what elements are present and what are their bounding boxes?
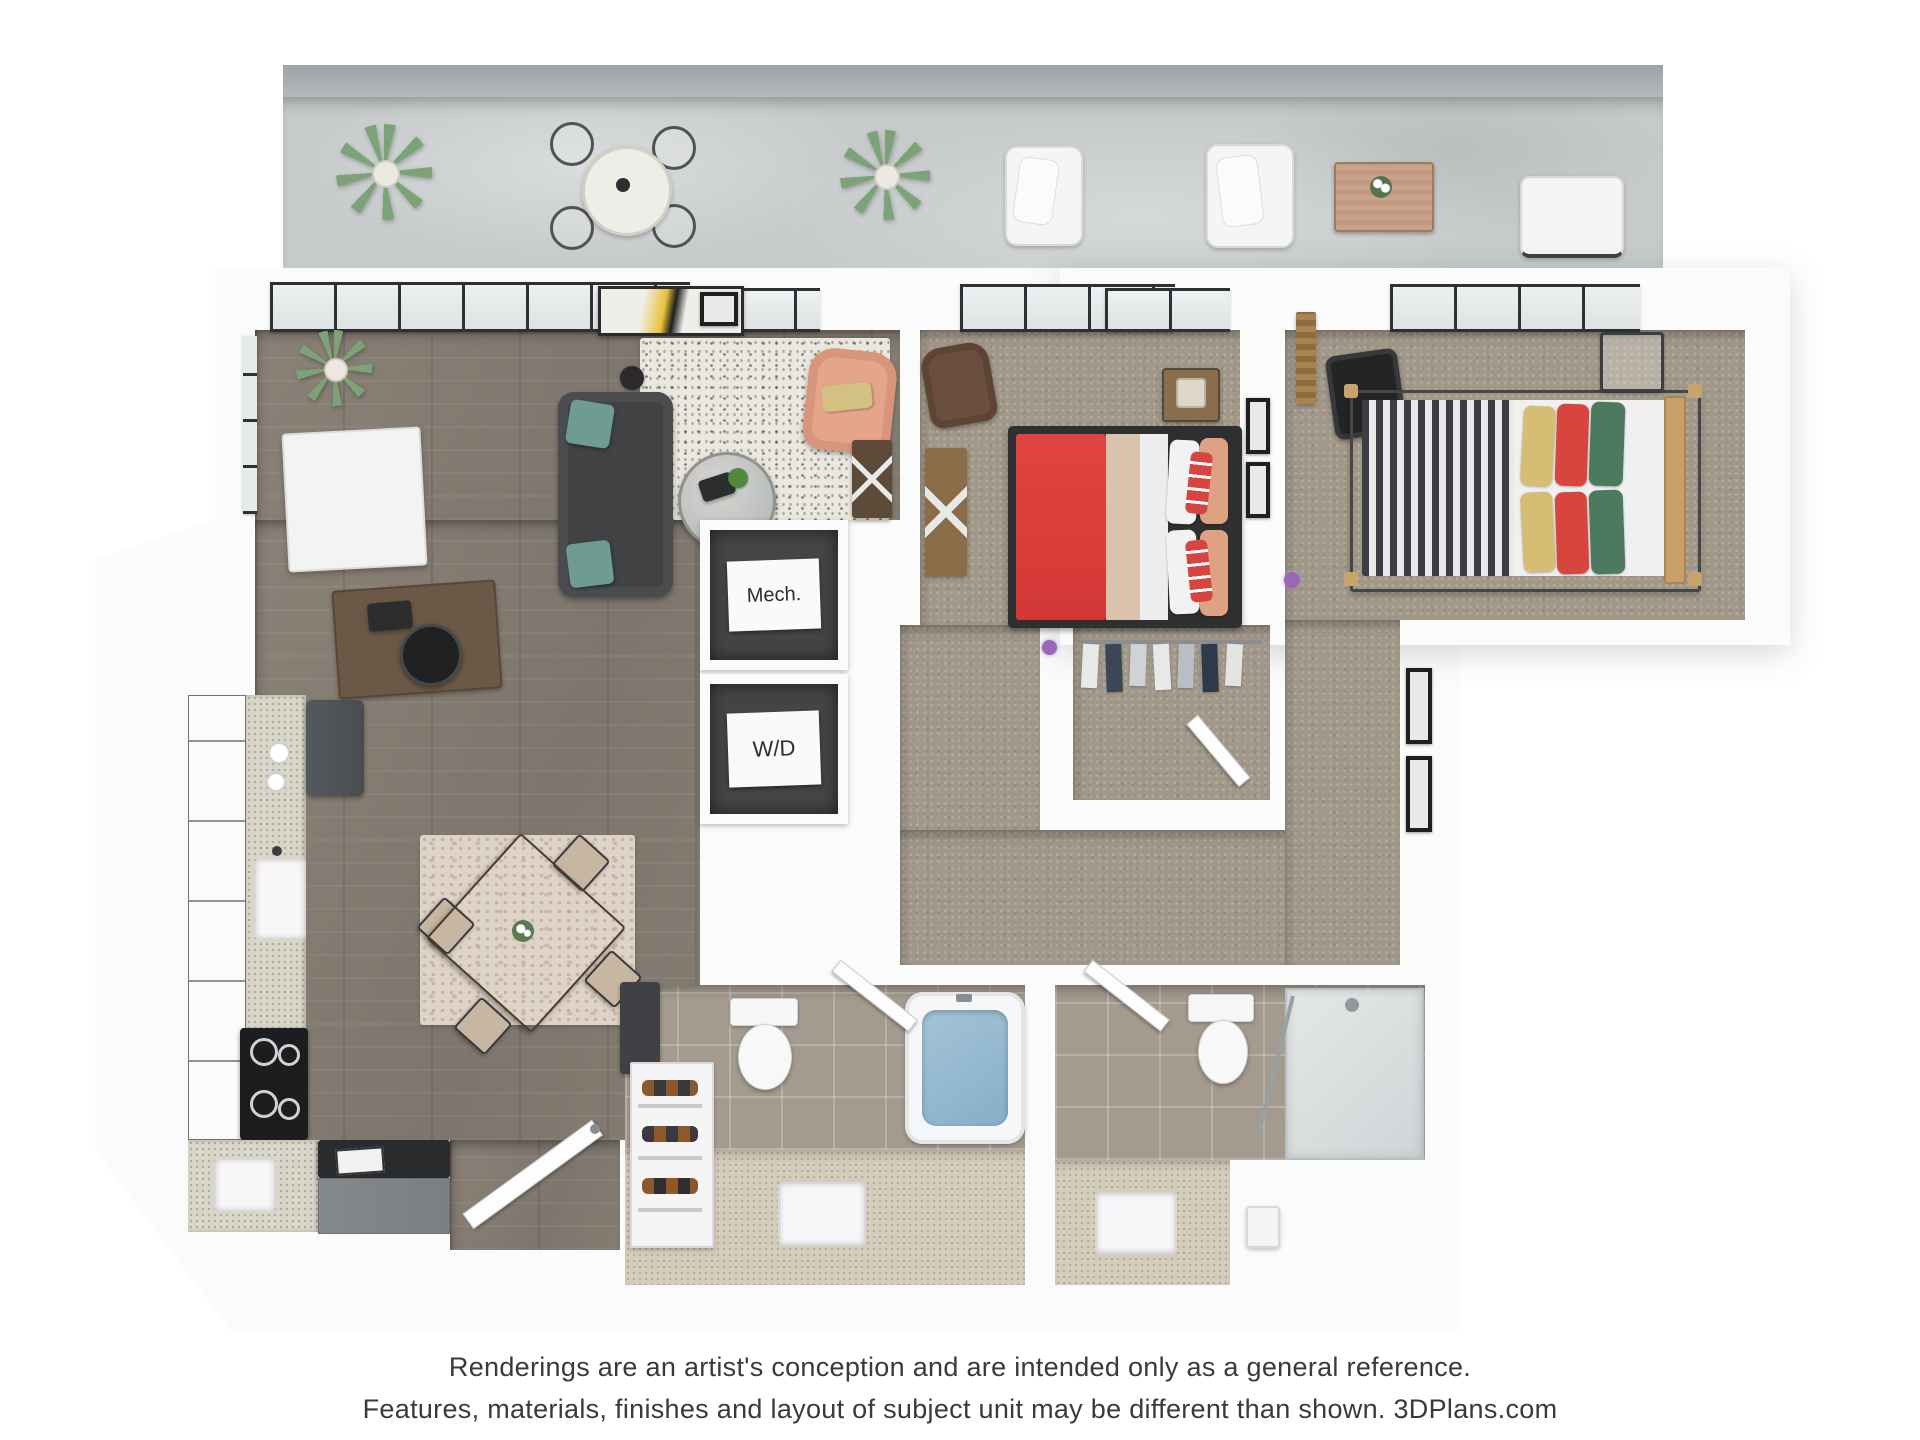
bedroom1-console (925, 448, 967, 576)
kitchen-cabinets (188, 695, 246, 1140)
balcony-floor (283, 97, 1663, 270)
living-sideboard (281, 426, 427, 572)
balcony-armchair (1520, 176, 1624, 258)
floor-lamp-icon (620, 366, 644, 390)
living-corner-window (243, 336, 257, 514)
stove-cooktop (240, 1028, 308, 1140)
shoe-shelf (638, 1208, 702, 1212)
laundry-closet: W/D (700, 674, 848, 824)
bed2-canopy-post (1688, 384, 1702, 398)
kitchen-canister-2 (266, 772, 286, 792)
armchair-pillow (821, 381, 873, 412)
bedroom1-wall-art (1246, 398, 1270, 454)
shoes-icon (642, 1178, 698, 1194)
balcony-wire-chair (550, 122, 594, 166)
bed2-pillow-green (1589, 489, 1626, 574)
mech-closet: Mech. (700, 520, 848, 670)
corridor-wall-art (1406, 668, 1432, 744)
balcony-table-vase (616, 178, 630, 192)
floor-plan-canvas: Mech. W/D (0, 0, 1920, 1440)
closet-clothes (1153, 644, 1171, 691)
bedroom1-table-lamp-icon (1176, 378, 1206, 408)
bedroom1-wall-art (1246, 462, 1270, 518)
hall-flower-icon (1042, 640, 1057, 655)
shoes-icon (642, 1080, 698, 1096)
bedroom2-sliding-door (1390, 284, 1640, 332)
dining-table-flowers-icon (512, 920, 534, 942)
bedroom2-entry-window (1105, 288, 1230, 332)
closet-clothes (1081, 644, 1099, 689)
bedroom2-ladder-shelf (1296, 312, 1316, 404)
mech-label: Mech. (746, 583, 801, 608)
disclaimer-line-1: Renderings are an artist's conception an… (0, 1352, 1920, 1383)
coffee-table-plant-icon (728, 468, 748, 488)
bedroom2-corridor-floor (1285, 620, 1400, 965)
bathroom2-toilet-tank (1188, 994, 1254, 1022)
bedroom1-accent-chair (919, 340, 1000, 431)
bed2-pillow-red (1555, 491, 1590, 574)
balcony-round-table (582, 146, 672, 236)
refrigerator (306, 700, 364, 796)
closet-clothes (1105, 644, 1123, 693)
shoes-icon (642, 1126, 698, 1142)
bathroom1-toilet-tank (730, 998, 798, 1026)
shoe-shelf (638, 1156, 702, 1160)
balcony-lounge-cushion-2 (1215, 154, 1265, 229)
closet-clothes (1225, 644, 1243, 687)
corridor-flower-icon (1284, 572, 1300, 588)
kitchen-faucet-icon (272, 846, 282, 856)
closet-clothes (1177, 644, 1195, 689)
shoe-shelf (638, 1104, 702, 1108)
bed2-canopy-post (1688, 572, 1702, 586)
bed2-pillow-yellow (1520, 491, 1556, 573)
kitchen-canister (268, 742, 290, 764)
bathtub-faucet-icon (956, 994, 972, 1002)
wd-label-plate: W/D (727, 710, 822, 787)
mech-label-plate: Mech. (727, 558, 821, 631)
bed2-pillow-yellow (1520, 405, 1556, 487)
bathroom2-sink (1095, 1192, 1177, 1254)
balcony-back-wall (283, 65, 1663, 97)
bathroom1-toilet-bowl (738, 1024, 792, 1090)
living-plant-pot (324, 358, 348, 382)
balcony-flowers-icon (1370, 176, 1392, 198)
kitchen-sink (254, 858, 306, 940)
bed1-sheets (1140, 434, 1168, 620)
corridor-wall-art (1406, 756, 1432, 832)
x-side-table (852, 440, 892, 518)
bathroom1-shoe-closet (630, 1062, 714, 1248)
bathroom2-hamper (1246, 1206, 1280, 1248)
entry-floor (450, 1140, 620, 1250)
walk-in-shower (1285, 988, 1424, 1160)
bed2-headboard (1664, 396, 1686, 584)
kitchen-prep-sink (214, 1158, 276, 1212)
bed2-pillow-green (1589, 401, 1626, 486)
disclaimer-line-2: Features, materials, finishes and layout… (0, 1394, 1920, 1425)
bed2-canopy-post (1344, 572, 1358, 586)
shower-head-icon (1345, 998, 1359, 1012)
kitchen-island-cabinet (318, 1178, 450, 1234)
entry-door-handle-icon (590, 1124, 600, 1134)
balcony-palm-pot-2 (874, 164, 900, 190)
tv-on-wall (620, 982, 660, 1074)
balcony-palm-pot (372, 160, 400, 188)
bed2-canopy-post (1344, 384, 1358, 398)
bed2-pillow-red (1555, 403, 1590, 486)
washer-dryer-label: W/D (752, 735, 796, 762)
sofa-pillow (565, 399, 615, 449)
bedroom2-wire-nightstand (1600, 332, 1664, 392)
books-on-island (335, 1146, 385, 1175)
closet-clothes (1201, 644, 1219, 693)
bathroom1-sink (778, 1182, 866, 1246)
bed1-blanket-red (1016, 434, 1106, 620)
wall-art-small (700, 292, 738, 326)
sofa-pillow-2 (565, 539, 614, 588)
bathtub-water (922, 1010, 1008, 1126)
closet-clothes (1129, 644, 1146, 687)
bathroom2-toilet-bowl (1198, 1020, 1248, 1084)
bed1-blanket-fold (1106, 434, 1140, 620)
desk-chair (400, 624, 462, 686)
bed2-striped-duvet (1362, 400, 1514, 576)
laptop-on-desk (367, 600, 413, 632)
